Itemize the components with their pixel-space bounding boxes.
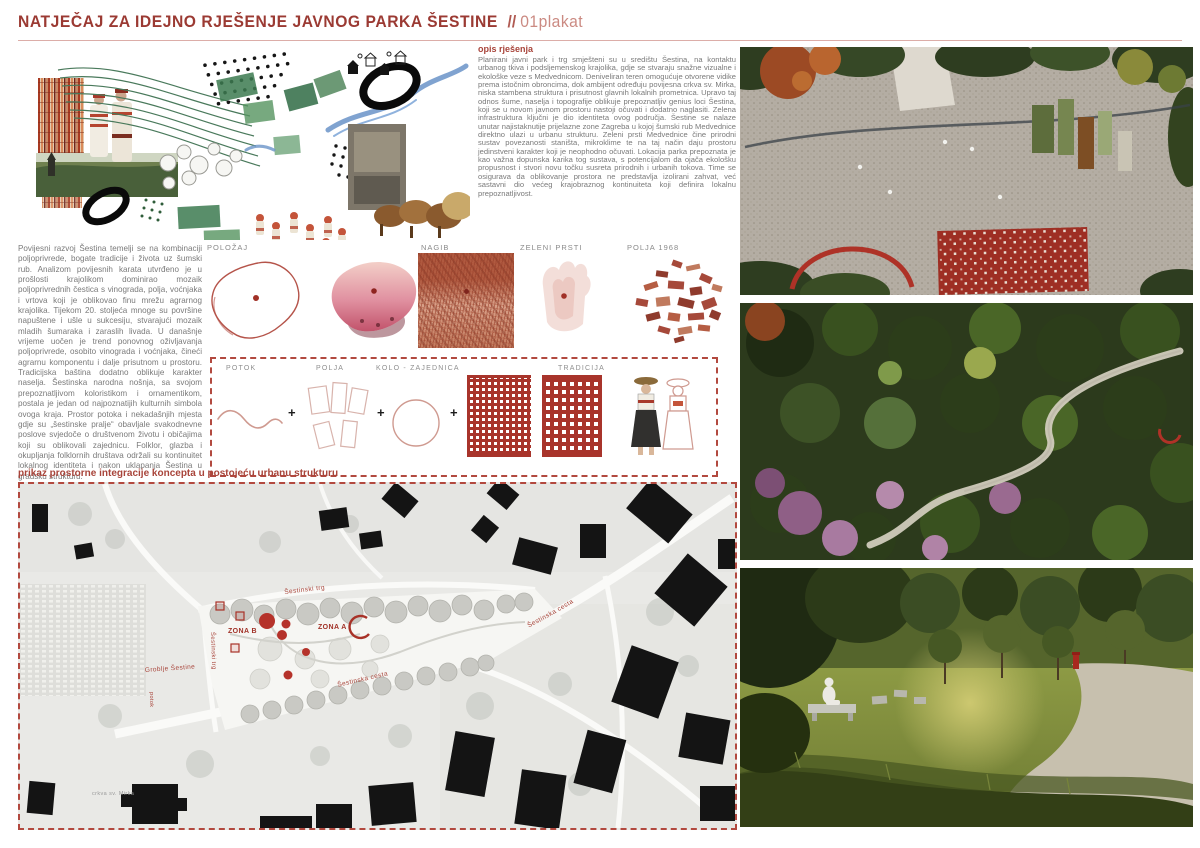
history-paragraph: Povijesni razvoj Šestina temelji se na k… bbox=[18, 244, 202, 482]
concept-label-tradicija: TRADICIJA bbox=[558, 365, 605, 372]
potok-sketch bbox=[216, 389, 284, 449]
site-dot bbox=[464, 289, 469, 294]
field-parcels bbox=[635, 259, 722, 343]
analysis-label-nagib: NAGIB bbox=[421, 243, 449, 252]
site-dot bbox=[561, 293, 567, 299]
label-zona-a: ZONA A bbox=[318, 624, 347, 631]
concept-label-potok: POTOK bbox=[226, 365, 256, 372]
field-patches bbox=[177, 70, 346, 240]
project-description: opis rješenja Planirani javni park i trg… bbox=[478, 44, 736, 198]
concept-label-polja: POLJA bbox=[316, 365, 344, 372]
concept-equation-box: POTOK POLJA KOLO - ZAJEDNICA TRADICIJA +… bbox=[210, 357, 718, 477]
header-rule bbox=[18, 40, 1182, 41]
poster-title: NATJEČAJ ZA IDEJNO RJEŠENJE JAVNOG PARKA… bbox=[18, 12, 498, 31]
site-plan-graphic: Šestinski trg Šestinski trg Šestinska ce… bbox=[20, 484, 735, 828]
map-heading: prikaz prostorne integracije koncepta u … bbox=[18, 468, 338, 479]
figure-dark bbox=[631, 377, 661, 455]
label-potok: potok bbox=[148, 692, 154, 707]
analysis-label-polja-1968: POLJA 1968 bbox=[627, 243, 679, 252]
site-dot bbox=[371, 288, 377, 294]
ornament-pavement bbox=[937, 227, 1089, 295]
label-sestinski-trg-vertical: Šestinski trg bbox=[209, 632, 217, 670]
plus-sign: + bbox=[450, 405, 458, 420]
render-park-aerial bbox=[740, 303, 1193, 560]
label-crkva-sv-mirka: crkva sv. Mirka bbox=[92, 791, 135, 797]
polja-sketch bbox=[300, 379, 372, 457]
poster-page: NATJEČAJ ZA IDEJNO RJEŠENJE JAVNOG PARKA… bbox=[0, 0, 1200, 848]
folk-textile-strip bbox=[38, 78, 84, 162]
title-separator: // bbox=[507, 12, 516, 31]
site-plan-map: Šestinski trg Šestinski trg Šestinska ce… bbox=[18, 482, 737, 830]
poster-header: NATJEČAJ ZA IDEJNO RJEŠENJE JAVNOG PARKA… bbox=[18, 12, 583, 32]
folk-dancers bbox=[256, 212, 346, 240]
site-dot bbox=[253, 295, 259, 301]
figure-outline bbox=[663, 379, 693, 449]
description-body: Planirani javni park i trg smješteni su … bbox=[478, 56, 736, 198]
label-zona-b: ZONA B bbox=[228, 628, 257, 635]
diagram-nagib bbox=[418, 253, 514, 348]
render-plaza-topdown bbox=[740, 47, 1193, 295]
analysis-label-zeleni-prsti: ZELENI PRSTI bbox=[520, 243, 582, 252]
diagram-terrain bbox=[322, 255, 426, 343]
cemetery-area bbox=[20, 584, 146, 696]
collage-graphic bbox=[18, 48, 470, 240]
diagram-polja-1968 bbox=[626, 255, 732, 347]
embroidery-pattern-1 bbox=[467, 375, 531, 457]
analysis-label-polozaj: POLOŽAJ bbox=[207, 243, 248, 252]
inspiration-collage bbox=[18, 48, 470, 240]
archive-photo bbox=[348, 124, 406, 210]
green-dot-grid bbox=[141, 199, 164, 222]
folk-costume-figures bbox=[626, 373, 698, 465]
folk-couple-figures bbox=[90, 89, 132, 162]
diagram-zeleni-prsti bbox=[533, 256, 595, 340]
description-heading: opis rješenja bbox=[478, 44, 736, 54]
sheet-number: 01plakat bbox=[520, 12, 583, 31]
red-post bbox=[1072, 652, 1080, 669]
kolo-sketch bbox=[390, 397, 442, 449]
embroidery-pattern-2 bbox=[542, 375, 602, 457]
diagram-polozaj bbox=[203, 255, 315, 350]
plus-sign: + bbox=[377, 405, 385, 420]
concept-label-kolo: KOLO - ZAJEDNICA bbox=[376, 365, 460, 372]
tree-sketches bbox=[160, 143, 242, 189]
plus-sign: + bbox=[288, 405, 296, 420]
render-meadow-statue bbox=[740, 568, 1193, 827]
